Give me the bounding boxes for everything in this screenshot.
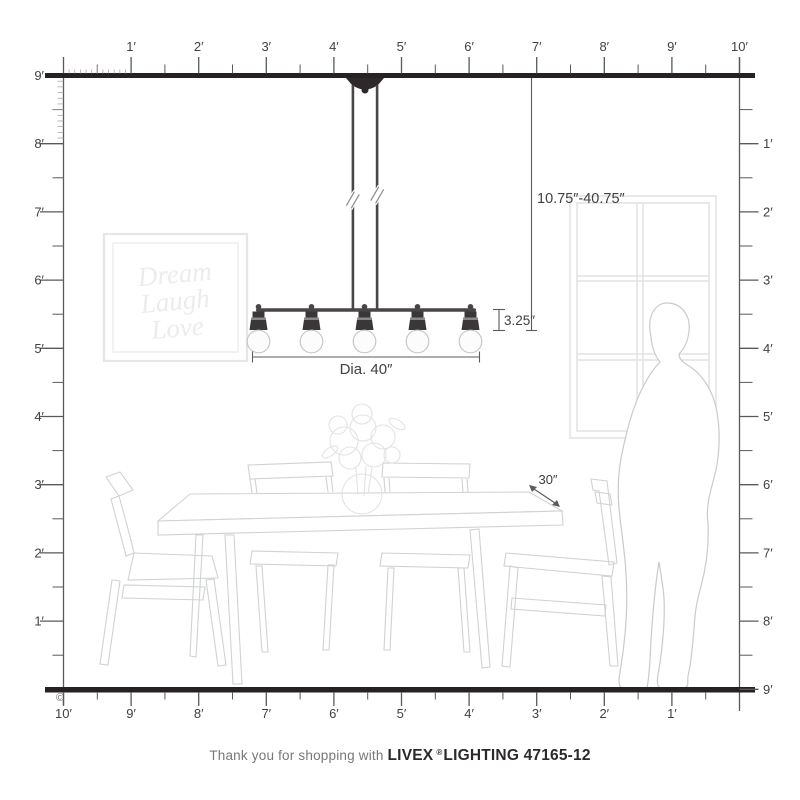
ruler-label: 9′: [34, 68, 44, 83]
ruler-label: 7′: [763, 545, 773, 560]
ruler-label: 5′: [34, 341, 44, 356]
socket-ring: [251, 318, 266, 320]
ruler-label: 7′: [532, 39, 542, 54]
ruler-label: 10′: [55, 706, 72, 721]
ruler-label: 3′: [763, 273, 773, 288]
ruler-label: 8′: [763, 614, 773, 629]
socket-neck: [253, 312, 265, 319]
ruler-label: 3′: [261, 39, 271, 54]
dim-label-fixture-height: 3.25″: [504, 313, 535, 328]
right-ruler: 1′2′3′4′5′6′7′8′9′: [740, 110, 774, 697]
ruler-label: 6′: [464, 39, 474, 54]
footer-model-number: LIGHTING 47165-12: [443, 747, 590, 764]
table-leg-rear-left: [190, 535, 203, 657]
pendant-fixture: [247, 78, 482, 353]
ruler-label: 9′: [126, 706, 136, 721]
socket-knob: [468, 304, 474, 310]
ruler-label: 1′: [667, 706, 677, 721]
socket-ring: [463, 318, 478, 320]
socket-cup: [303, 320, 321, 330]
chair-back-right: [380, 463, 470, 652]
registered-mark: ®: [436, 748, 442, 757]
wall-art: Dream Laugh Love: [104, 234, 247, 361]
socket-cup: [250, 320, 268, 330]
ruler-label: 5′: [763, 409, 773, 424]
ruler-label: 2′: [194, 39, 204, 54]
socket-knob: [309, 304, 315, 310]
bottom-ruler: 1′2′3′4′5′6′7′8′9′10′: [55, 692, 706, 721]
dim-label-table: 30″: [538, 472, 557, 487]
ruler-label: 4′: [34, 409, 44, 424]
top-ruler: 1′2′3′4′5′6′7′8′9′10′: [69, 39, 748, 74]
dim-label-diameter: Dia. 40″: [340, 361, 394, 378]
ruler-label: 7′: [261, 706, 271, 721]
chair-back-left: [248, 462, 338, 652]
footer: Thank you for shopping with LIVEX®LIGHTI…: [0, 747, 800, 765]
dining-set: [100, 404, 618, 684]
left-ruler: 9′8′7′6′5′4′3′2′1′: [34, 68, 63, 655]
ruler-label: 6′: [34, 273, 44, 288]
ruler-label: 6′: [763, 477, 773, 492]
ruler-label: 10′: [731, 39, 748, 54]
ruler-label: 8′: [34, 136, 44, 151]
chair-right-front-leg: [502, 566, 518, 667]
ruler-label: 2′: [763, 204, 773, 219]
chair-left-rear-leg: [100, 580, 120, 665]
ruler-label: 7′: [34, 204, 44, 219]
ruler-label: 2′: [34, 545, 44, 560]
ruler-label: 5′: [397, 706, 407, 721]
ruler-label: 9′: [667, 39, 677, 54]
wall-art-word-love: Love: [149, 311, 205, 346]
ruler-label: 6′: [329, 706, 339, 721]
ceiling-line: [45, 73, 755, 78]
light-bulb: [247, 330, 270, 353]
ruler-label: 5′: [397, 39, 407, 54]
socket-neck: [359, 312, 371, 319]
ruler-label: 8′: [599, 39, 609, 54]
socket-knob: [256, 304, 262, 310]
socket-cup: [356, 320, 374, 330]
ruler-label: 4′: [763, 341, 773, 356]
ruler-label: 8′: [194, 706, 204, 721]
table-leg-front-right: [470, 529, 490, 668]
ruler-label: 4′: [464, 706, 474, 721]
ruler-label: 1′: [126, 39, 136, 54]
socket-cup: [462, 320, 480, 330]
socket-ring: [357, 318, 372, 320]
rod-break-mark: [344, 190, 361, 210]
light-bulb: [353, 330, 376, 353]
socket-knob: [362, 304, 368, 310]
socket-ring: [304, 318, 319, 320]
floor-line: [45, 687, 755, 693]
dining-table: [158, 492, 563, 684]
dimension-annotations: [253, 78, 561, 507]
ruler-label: 1′: [763, 136, 773, 151]
rod-break-mark: [369, 185, 386, 205]
chair-right-rear-leg: [602, 576, 618, 666]
dimension-diagram: Dream Laugh Love: [0, 0, 800, 800]
table-leg-front-left: [225, 535, 242, 684]
ruler-label: 4′: [329, 39, 339, 54]
footer-thankyou-text: Thank you for shopping with: [209, 748, 383, 763]
canopy-knob: [362, 87, 369, 94]
dimension-diagram-page: Dream Laugh Love: [0, 0, 800, 800]
light-bulb: [406, 330, 429, 353]
ruler-label: 2′: [599, 706, 609, 721]
ruler-label: 1′: [34, 614, 44, 629]
socket-knob: [415, 304, 421, 310]
light-bulb: [300, 330, 323, 353]
light-bulb: [459, 330, 482, 353]
ruler-label: 3′: [34, 477, 44, 492]
socket-neck: [412, 312, 424, 319]
chair-left-front-leg: [206, 579, 226, 666]
ruler-label: 3′: [532, 706, 542, 721]
socket-neck: [306, 312, 318, 319]
dim-label-hang-range: 10.75″-40.75″: [537, 191, 625, 207]
socket-cup: [409, 320, 427, 330]
footer-brand: LIVEX: [388, 747, 434, 764]
socket-neck: [465, 312, 477, 319]
socket-ring: [410, 318, 425, 320]
ruler-label: 9′: [763, 682, 773, 697]
